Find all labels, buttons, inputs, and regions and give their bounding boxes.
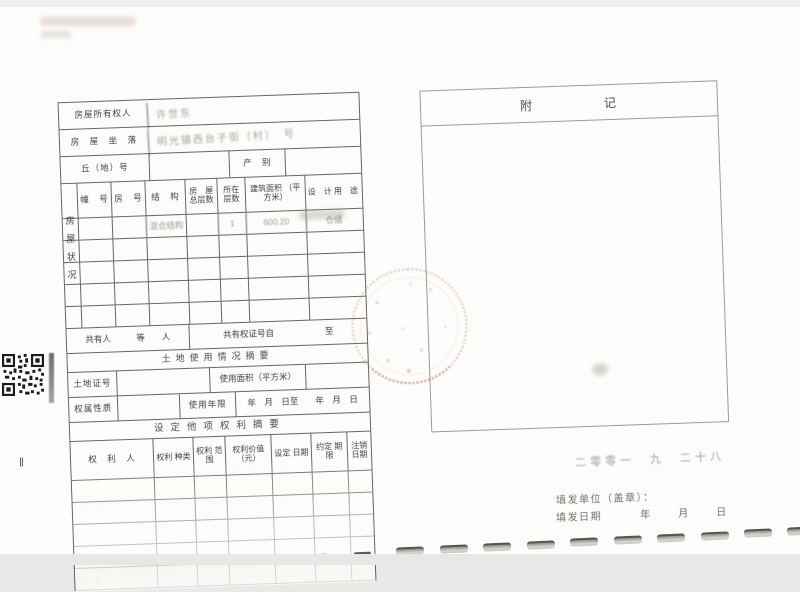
land-area-label: 使用面积（平方米） bbox=[209, 365, 306, 392]
binder-hole bbox=[483, 542, 511, 551]
annex-box: 附 记 bbox=[419, 80, 729, 432]
binder-hole bbox=[701, 531, 729, 540]
tenure-years-label: 使用年限 bbox=[179, 392, 236, 418]
rcol-type: 权利 种类 bbox=[152, 438, 193, 477]
binder-hole bbox=[440, 544, 468, 553]
cell-structure: 混合结构 bbox=[146, 215, 187, 237]
col-area: 建筑面积 （平方米） bbox=[244, 176, 305, 212]
rcol-scope: 权利 范围 bbox=[192, 437, 225, 476]
cell-total-floors bbox=[186, 214, 219, 236]
land-cert-value-cell bbox=[116, 368, 210, 395]
binder-hole bbox=[614, 535, 642, 544]
issue-date-label: 填发日期 bbox=[556, 512, 602, 525]
col-usage: 设 计 用 途 bbox=[304, 174, 360, 210]
land-area-value-cell bbox=[305, 363, 369, 389]
rcol-cancel-date: 注销 日期 bbox=[346, 432, 371, 471]
land-cert-label: 土地证号 bbox=[68, 371, 117, 397]
location-label: 房 屋 坐 落 bbox=[60, 127, 149, 156]
cell-unit bbox=[78, 217, 113, 239]
category-value-cell bbox=[284, 147, 361, 176]
page-fold-shadow bbox=[49, 353, 54, 403]
tenure-label: 权属性质 bbox=[69, 396, 118, 422]
binder-hole bbox=[787, 526, 800, 535]
plot-label: 丘（地）号 bbox=[60, 154, 149, 183]
cell-area: 600.20 bbox=[246, 211, 307, 234]
scan-edge-top bbox=[0, 0, 800, 7]
annex-title: 附 记 bbox=[420, 81, 717, 126]
co-owner-left: 共有人 等 人 bbox=[66, 325, 189, 353]
page-number-marker: Ⅱ bbox=[19, 457, 23, 470]
tenure-dates: 年 月 日至 年 月 日 bbox=[235, 388, 370, 417]
col-floor: 所在 层数 bbox=[216, 178, 245, 213]
binder-hole bbox=[570, 537, 598, 546]
rcol-set-date: 设定 日期 bbox=[270, 434, 311, 473]
col-unit: 幢 号 bbox=[76, 182, 111, 217]
property-form-table: 房屋所有权人 许世东 房 屋 坐 落 明光镇西台子街（村） 号 丘（地）号 产 … bbox=[58, 92, 377, 591]
scanned-certificate-photo: { "colors": { "backdrop": "#e9e9e7", "pa… bbox=[0, 0, 800, 565]
cell-floor: 1 bbox=[218, 213, 247, 235]
certificate-page: 房屋所有权人 许世东 房 屋 坐 落 明光镇西台子街（村） 号 丘（地）号 产 … bbox=[0, 7, 800, 554]
binder-hole bbox=[744, 528, 772, 537]
col-total-floors: 房 屋 总层数 bbox=[184, 179, 217, 214]
scan-edge-bottom bbox=[0, 554, 800, 565]
binder-hole bbox=[527, 540, 555, 549]
annex-faint-mark bbox=[592, 363, 608, 376]
category-label: 产 别 bbox=[228, 149, 285, 177]
rcol-value: 权利价值 （元） bbox=[224, 435, 271, 475]
plot-value-cell bbox=[148, 151, 229, 180]
qr-code-icon bbox=[2, 353, 44, 397]
faded-stamp-smudge bbox=[40, 17, 136, 26]
cell-room bbox=[112, 216, 147, 238]
rcol-holder: 权 利 人 bbox=[70, 439, 153, 480]
col-room: 房 号 bbox=[110, 181, 145, 216]
col-structure: 结 构 bbox=[144, 180, 185, 215]
faint-writing-smudge bbox=[298, 209, 344, 220]
owner-label: 房屋所有权人 bbox=[59, 100, 148, 129]
binder-hole bbox=[657, 533, 685, 542]
faded-stamp-smudge-small bbox=[41, 31, 71, 38]
tenure-value-cell bbox=[117, 394, 180, 420]
rcol-term: 约定 期限 bbox=[310, 432, 347, 471]
